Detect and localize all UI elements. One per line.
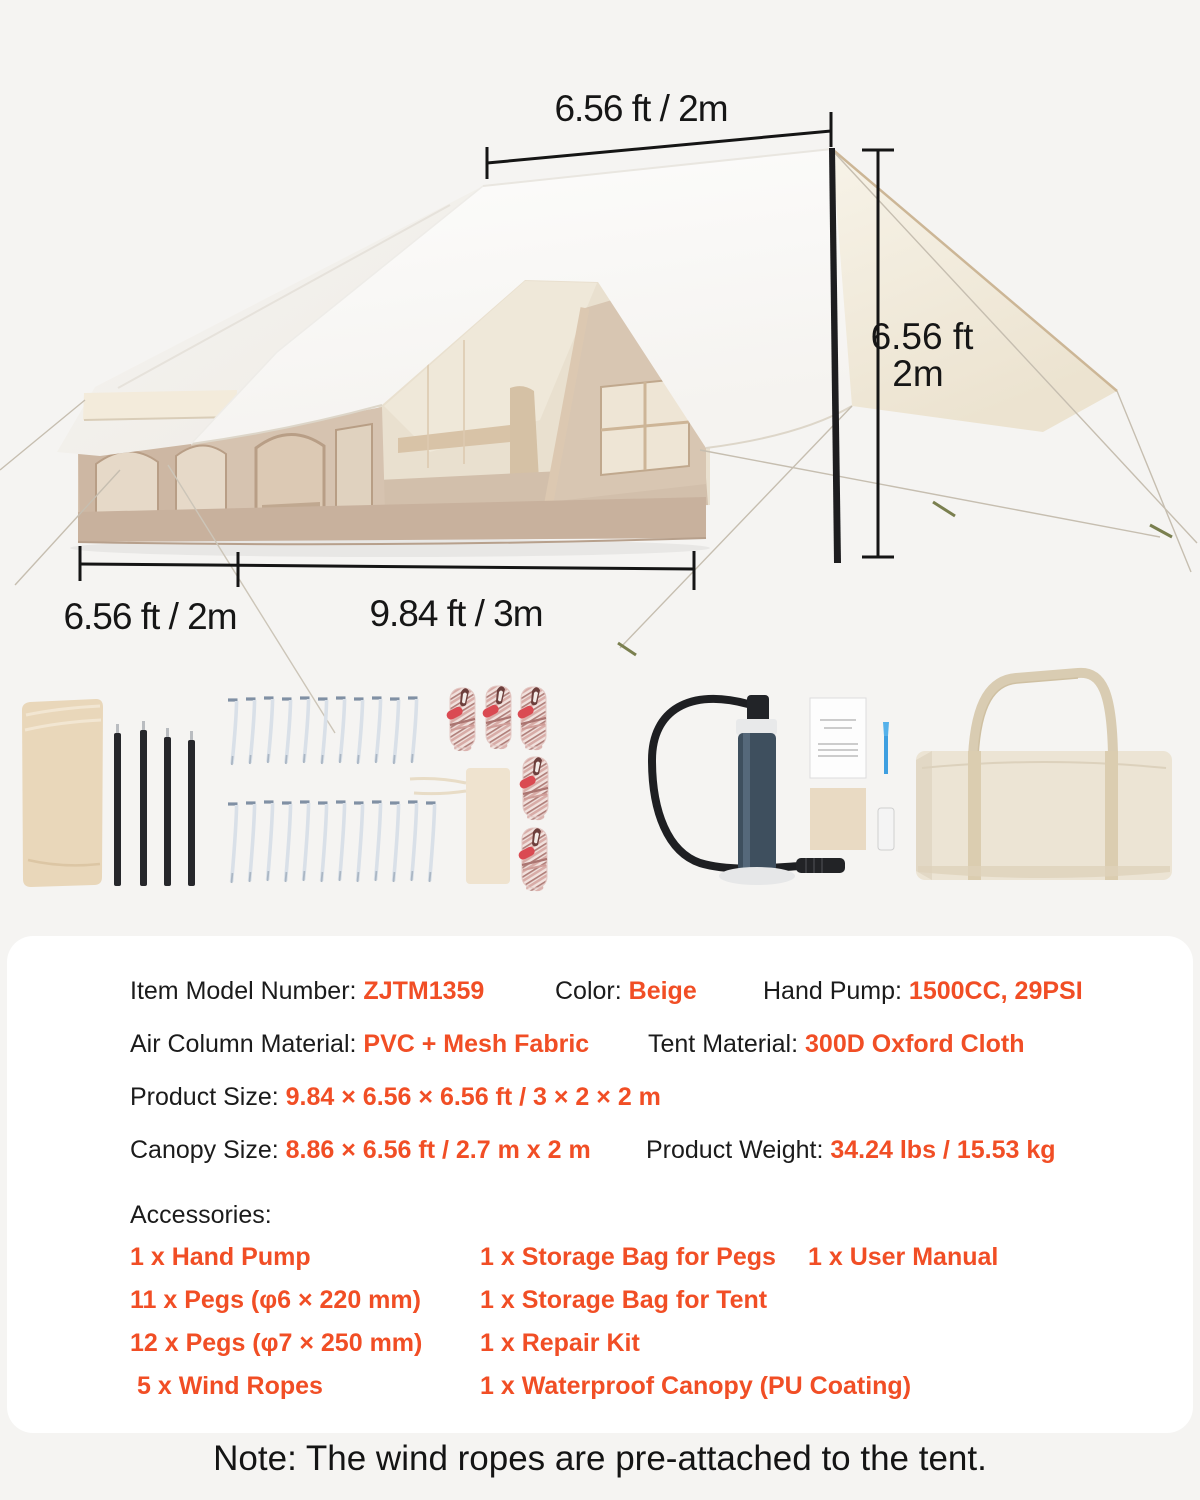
svg-text:9.84 ft / 3m: 9.84 ft / 3m [369,593,542,634]
svg-text:6.56 ft / 2m: 6.56 ft / 2m [554,88,727,129]
svg-text:6.56 ft / 2m: 6.56 ft / 2m [63,596,236,637]
svg-text:2m: 2m [892,353,943,394]
svg-text:6.56 ft: 6.56 ft [871,316,975,357]
